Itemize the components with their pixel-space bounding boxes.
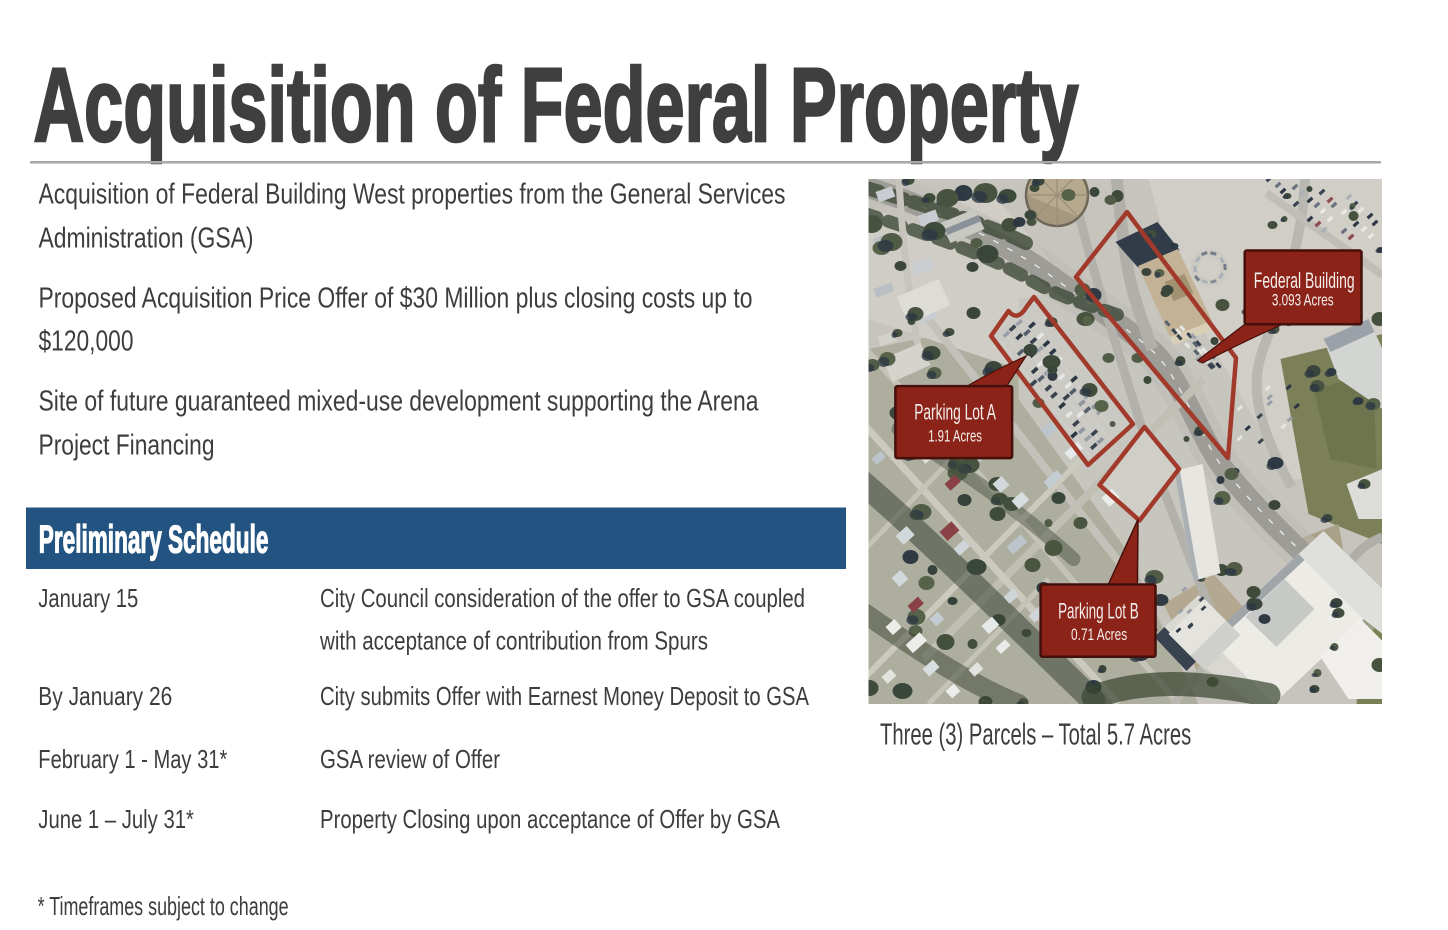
- svg-text:Administration (GSA): Administration (GSA): [39, 223, 254, 255]
- svg-text:June 1 – July 31*: June 1 – July 31*: [38, 804, 194, 834]
- svg-text:GSA review of Offer: GSA review of Offer: [320, 744, 500, 774]
- svg-text:with acceptance of contributio: with acceptance of contribution from Spu…: [319, 626, 708, 656]
- svg-text:Three (3) Parcels – Total 5.7: Three (3) Parcels – Total 5.7 Acres: [880, 718, 1191, 752]
- svg-text:Project Financing: Project Financing: [39, 430, 215, 462]
- svg-text:January 15: January 15: [38, 583, 138, 613]
- svg-text:Parking Lot A: Parking Lot A: [914, 400, 996, 425]
- svg-text:Federal Building: Federal Building: [1254, 268, 1355, 293]
- svg-text:3.093 Acres: 3.093 Acres: [1272, 292, 1334, 310]
- svg-text:1.91 Acres: 1.91 Acres: [928, 427, 982, 445]
- svg-text:Acquisition of Federal Propert: Acquisition of Federal Property: [34, 47, 1079, 164]
- svg-text:Preliminary Schedule: Preliminary Schedule: [39, 519, 269, 562]
- svg-text:Site of future guaranteed mixe: Site of future guaranteed mixed-use deve…: [39, 386, 760, 418]
- svg-text:City submits Offer with Earnes: City submits Offer with Earnest Money De…: [320, 681, 810, 711]
- svg-text:* Timeframes subject to change: * Timeframes subject to change: [38, 891, 289, 921]
- svg-text:By January 26: By January 26: [38, 681, 172, 711]
- svg-text:$120,000: $120,000: [39, 326, 134, 358]
- svg-text:Acquisition of Federal Buildin: Acquisition of Federal Building West pro…: [39, 179, 786, 211]
- svg-text:Parking Lot B: Parking Lot B: [1058, 599, 1139, 624]
- svg-text:0.71 Acres: 0.71 Acres: [1071, 626, 1127, 644]
- svg-text:Proposed Acquisition Price Off: Proposed Acquisition Price Offer of $30 …: [39, 283, 753, 315]
- svg-text:City Council consideration of: City Council consideration of the offer …: [320, 583, 805, 613]
- svg-text:February 1 - May 31*: February 1 - May 31*: [38, 744, 227, 774]
- svg-text:Property Closing upon acceptan: Property Closing upon acceptance of Offe…: [320, 804, 781, 834]
